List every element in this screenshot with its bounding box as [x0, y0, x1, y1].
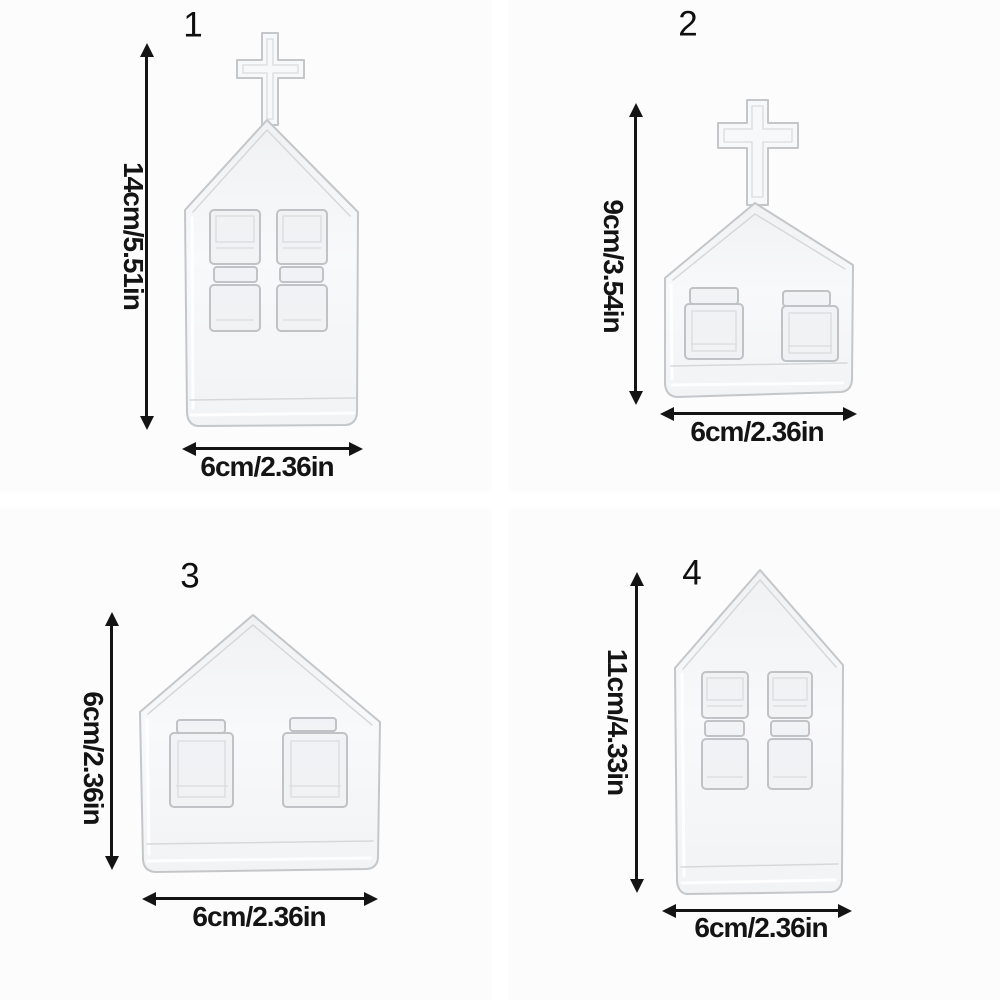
- item-number: 2: [678, 7, 697, 42]
- item-number: 3: [180, 559, 199, 594]
- church-vase-with-cross-icon: [655, 95, 860, 403]
- height-arrow: [635, 585, 638, 880]
- width-label: 6cm/2.36in: [690, 416, 823, 448]
- height-label: 9cm/3.54in: [597, 199, 629, 332]
- width-label: 6cm/2.36in: [192, 901, 325, 933]
- height-arrow: [634, 116, 637, 392]
- height-arrow: [110, 625, 113, 857]
- church-vase-with-cross-icon: [180, 30, 365, 432]
- height-label: 14cm/5.51in: [117, 162, 149, 310]
- height-label: 11cm/4.33in: [601, 649, 633, 795]
- width-arrow: [195, 447, 350, 450]
- width-arrow: [673, 412, 844, 415]
- width-label: 6cm/2.36in: [694, 912, 827, 944]
- width-label: 6cm/2.36in: [200, 451, 333, 483]
- size-chart-figure: 1 14cm/5.51in: [0, 0, 1000, 1000]
- house-vase-icon: [133, 606, 387, 878]
- house-vase-icon: [670, 558, 850, 898]
- height-label: 6cm/2.36in: [77, 691, 109, 824]
- width-arrow: [155, 897, 365, 900]
